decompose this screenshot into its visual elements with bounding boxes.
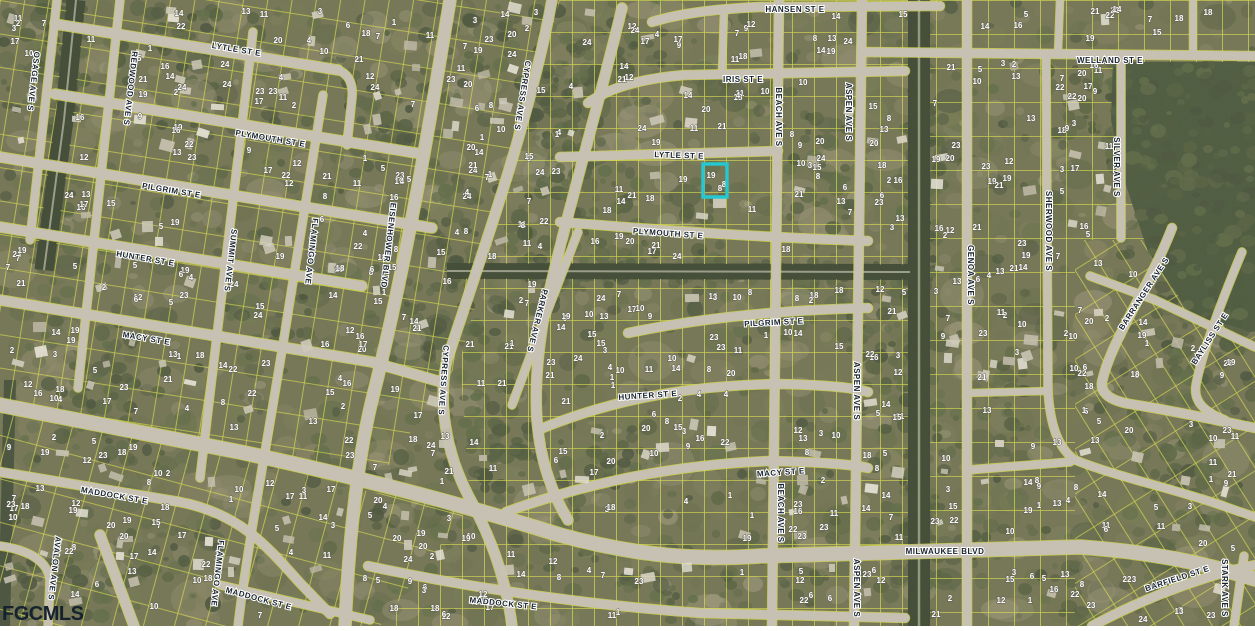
svg-text:GENOA AVE S: GENOA AVE S: [966, 245, 975, 305]
svg-text:ASPEN AVE S: ASPEN AVE S: [852, 362, 861, 421]
svg-text:FGCMLS: FGCMLS: [2, 603, 84, 625]
svg-text:BEACH AVE S: BEACH AVE S: [774, 87, 783, 146]
svg-text:HANSEN ST E: HANSEN ST E: [765, 5, 824, 14]
svg-text:BEACH AVE S: BEACH AVE S: [776, 483, 785, 542]
svg-text:SILVER AVE S: SILVER AVE S: [1112, 137, 1121, 197]
svg-text:ASPEN AVE S: ASPEN AVE S: [852, 559, 861, 618]
svg-text:MILWAUKEE BLVD: MILWAUKEE BLVD: [906, 547, 985, 556]
svg-text:SHERWOOD AVE S: SHERWOOD AVE S: [1044, 191, 1053, 271]
svg-text:WELLAND ST E: WELLAND ST E: [1077, 56, 1143, 65]
svg-text:LYTLE ST E: LYTLE ST E: [654, 150, 704, 161]
svg-text:IRIS ST E: IRIS ST E: [723, 75, 763, 84]
svg-text:ASPEN AVE S: ASPEN AVE S: [844, 83, 853, 142]
svg-text:STARK AVE S: STARK AVE S: [1220, 559, 1229, 617]
